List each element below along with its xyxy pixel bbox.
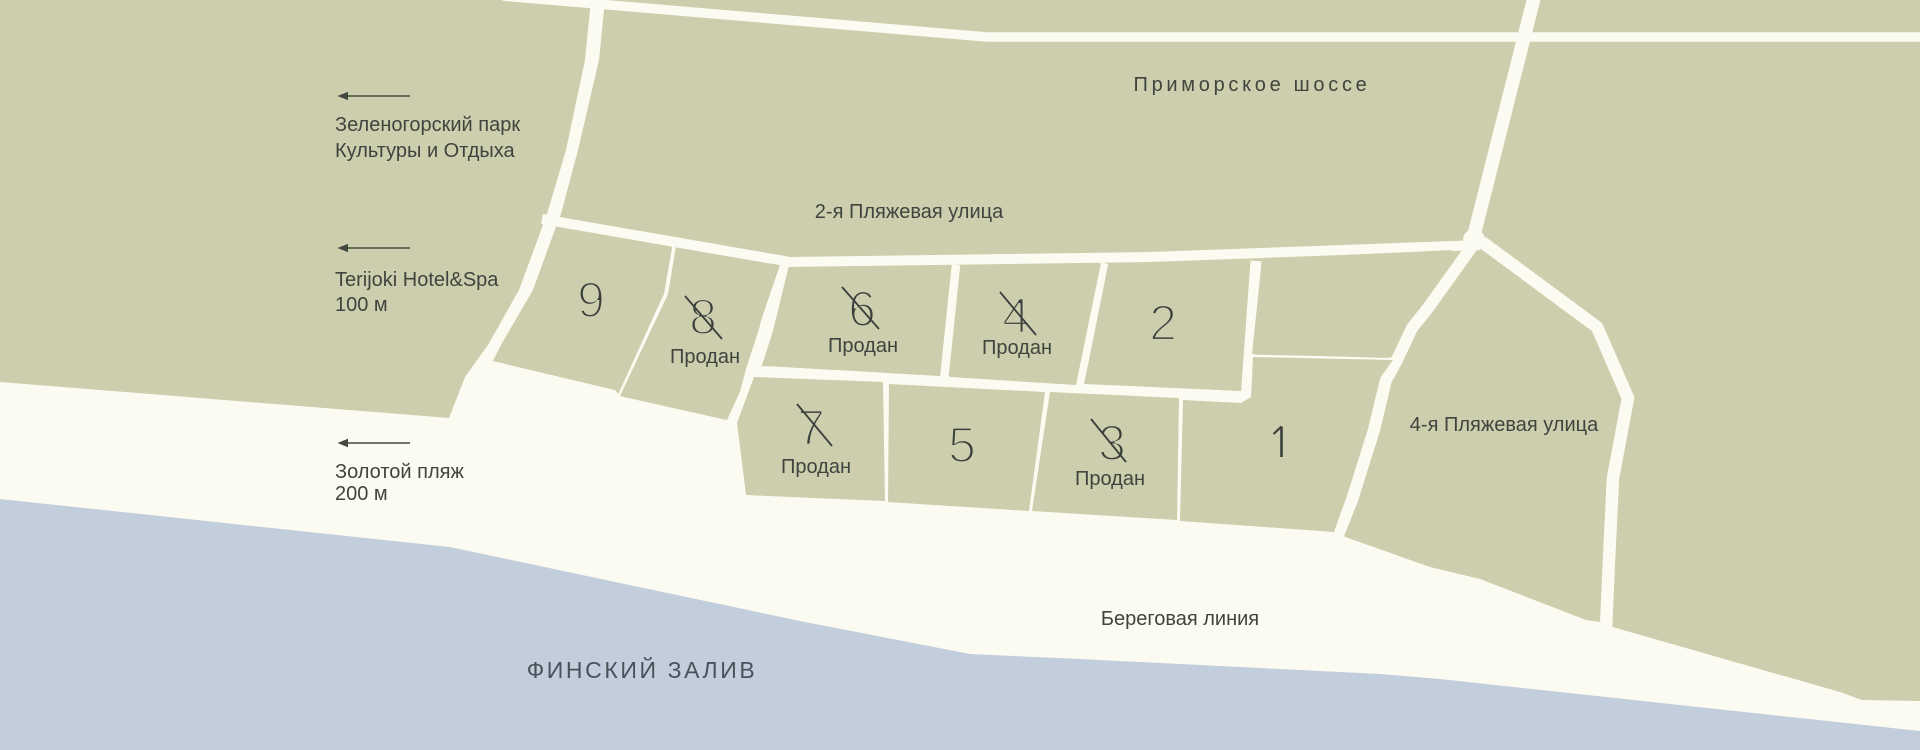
svg-text:5: 5	[948, 417, 976, 473]
svg-text:Продан: Продан	[1075, 468, 1145, 490]
svg-text:Продан: Продан	[670, 346, 740, 368]
svg-text:Продан: Продан	[828, 335, 898, 357]
svg-text:Продан: Продан	[982, 337, 1052, 359]
svg-text:100 м: 100 м	[335, 294, 388, 316]
svg-text:2-я Пляжевая улица: 2-я Пляжевая улица	[815, 201, 1004, 223]
svg-text:4-я Пляжевая улица: 4-я Пляжевая улица	[1410, 414, 1599, 436]
svg-text:9: 9	[577, 272, 605, 328]
svg-text:Продан: Продан	[781, 456, 851, 478]
svg-text:Приморское шоссе: Приморское шоссе	[1134, 74, 1371, 96]
svg-text:Terijoki Hotel&Spa: Terijoki Hotel&Spa	[335, 269, 499, 291]
svg-text:2: 2	[1149, 295, 1177, 351]
svg-text:4: 4	[1002, 288, 1030, 344]
svg-text:Береговая линия: Береговая линия	[1101, 608, 1259, 630]
svg-text:Культуры и Отдыха: Культуры и Отдыха	[335, 140, 516, 162]
svg-text:ФИНСКИЙ ЗАЛИВ: ФИНСКИЙ ЗАЛИВ	[527, 656, 758, 683]
svg-text:Золотой пляж: Золотой пляж	[335, 461, 464, 483]
svg-text:Зеленогорский парк: Зеленогорский парк	[335, 114, 520, 136]
svg-text:200 м: 200 м	[335, 483, 388, 505]
svg-text:3: 3	[1098, 415, 1126, 471]
